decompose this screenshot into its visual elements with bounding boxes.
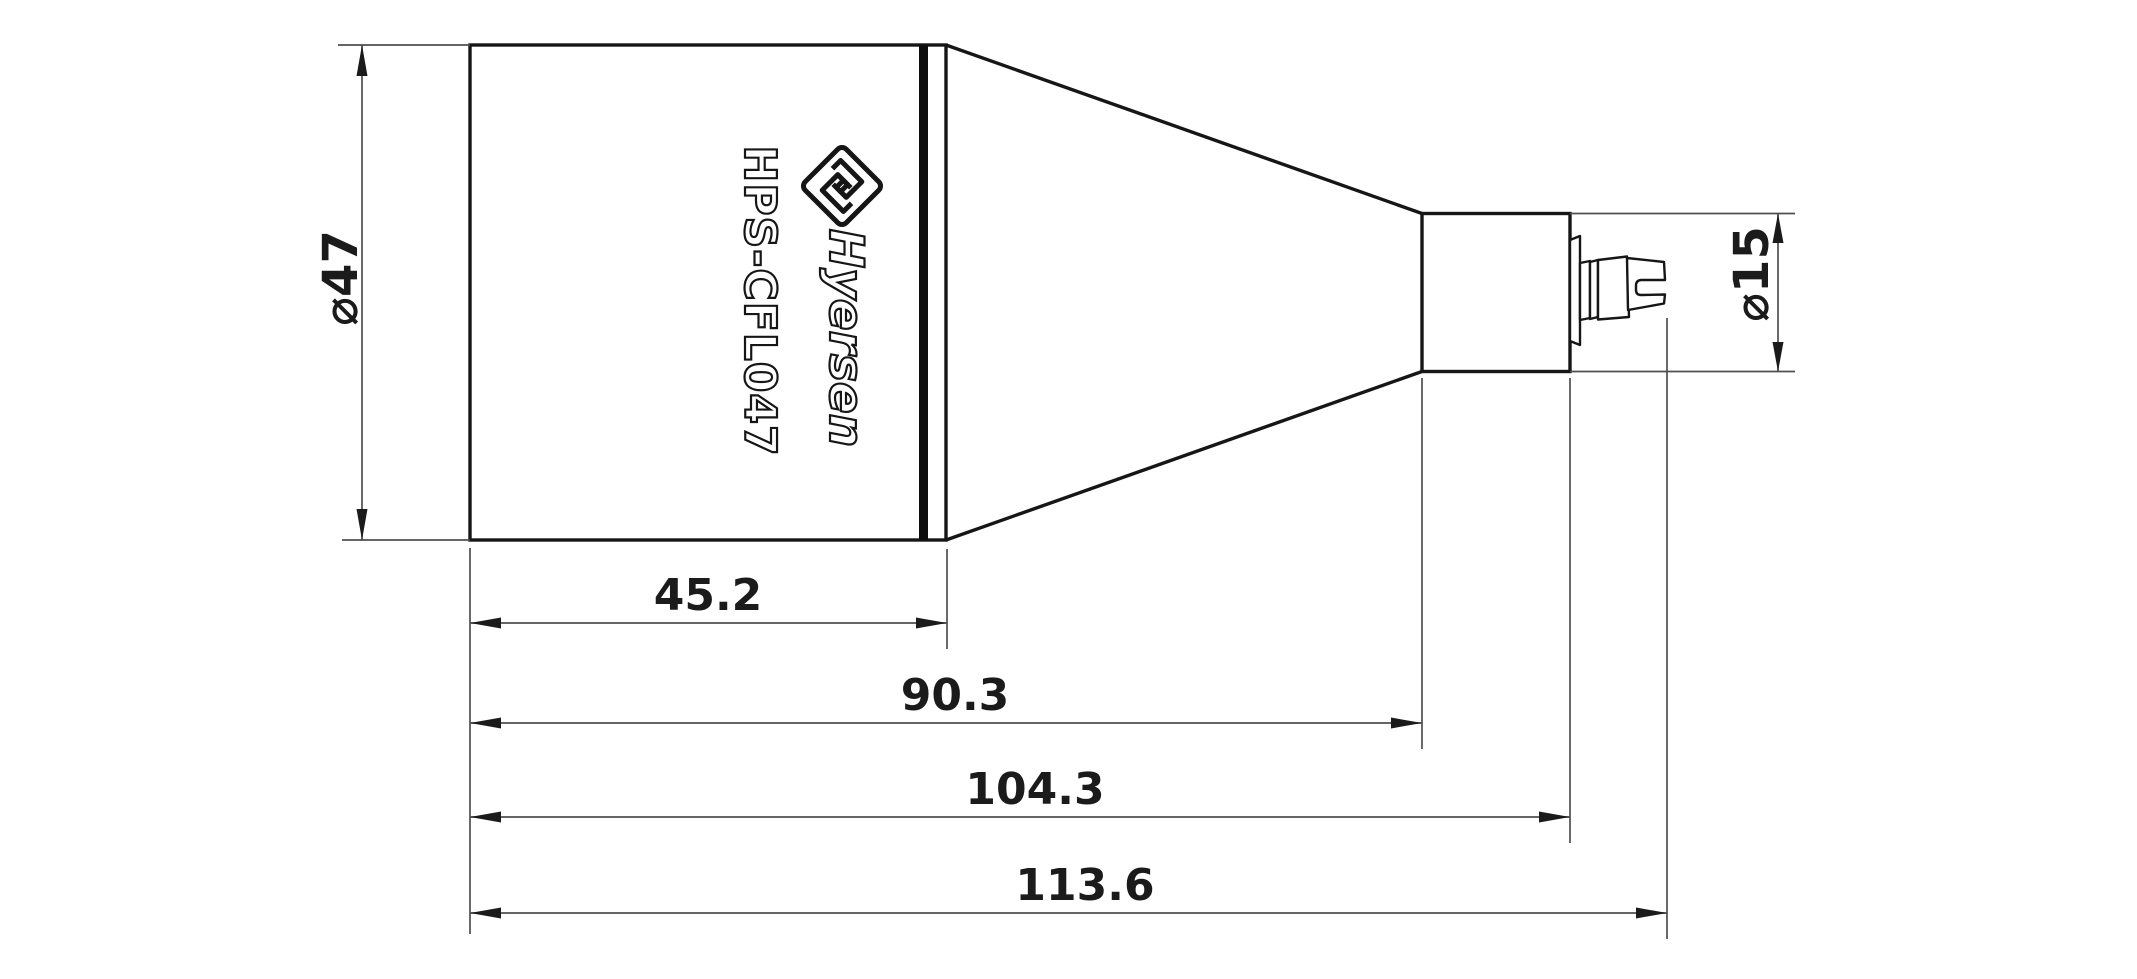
model-number-marking: HPS-CFL047 <box>734 145 785 456</box>
arrowhead-right <box>1391 718 1422 729</box>
connector-washer-outer <box>1580 261 1590 320</box>
device-outline <box>470 45 1665 540</box>
connector-barrel <box>1598 257 1629 320</box>
dimension-value: 45.2 <box>654 570 763 621</box>
dimension-value: 90.3 <box>901 670 1010 721</box>
arrowhead-right <box>916 618 947 629</box>
arrowhead-right <box>1539 812 1570 823</box>
neck-cylinder <box>1422 214 1570 372</box>
connector-tip-with-slot <box>1627 258 1665 310</box>
dimension-value: 113.6 <box>1015 860 1154 911</box>
arrowhead-down <box>357 509 368 540</box>
arrowhead-down <box>1773 342 1784 372</box>
dimension-front-section: 45.2 <box>470 549 947 649</box>
technical-drawing-canvas: HPS-CFL047 Hyersen ⌀47 ⌀15 <box>0 0 2137 979</box>
horn-top-edge <box>946 45 1422 214</box>
arrowhead-left <box>470 718 501 729</box>
brand-name-marking: Hyersen <box>818 229 873 447</box>
sma-connector <box>1570 236 1665 345</box>
arrowhead-left <box>470 618 501 629</box>
arrowhead-left <box>470 812 501 823</box>
dimension-value: ⌀47 <box>313 230 369 326</box>
connector-flange <box>1570 236 1580 345</box>
horn-bottom-edge <box>946 372 1422 541</box>
arrowhead-right <box>1636 908 1667 919</box>
housing-body <box>470 45 946 540</box>
dimension-body-diameter: ⌀47 <box>313 45 470 540</box>
housing-seam-band <box>919 45 928 540</box>
dimension-value: ⌀15 <box>1724 226 1780 322</box>
arrowhead-left <box>470 908 501 919</box>
technical-drawing-page: HPS-CFL047 Hyersen ⌀47 ⌀15 <box>0 0 2137 979</box>
dimension-value: 104.3 <box>965 764 1104 815</box>
arrowhead-up <box>357 45 368 76</box>
